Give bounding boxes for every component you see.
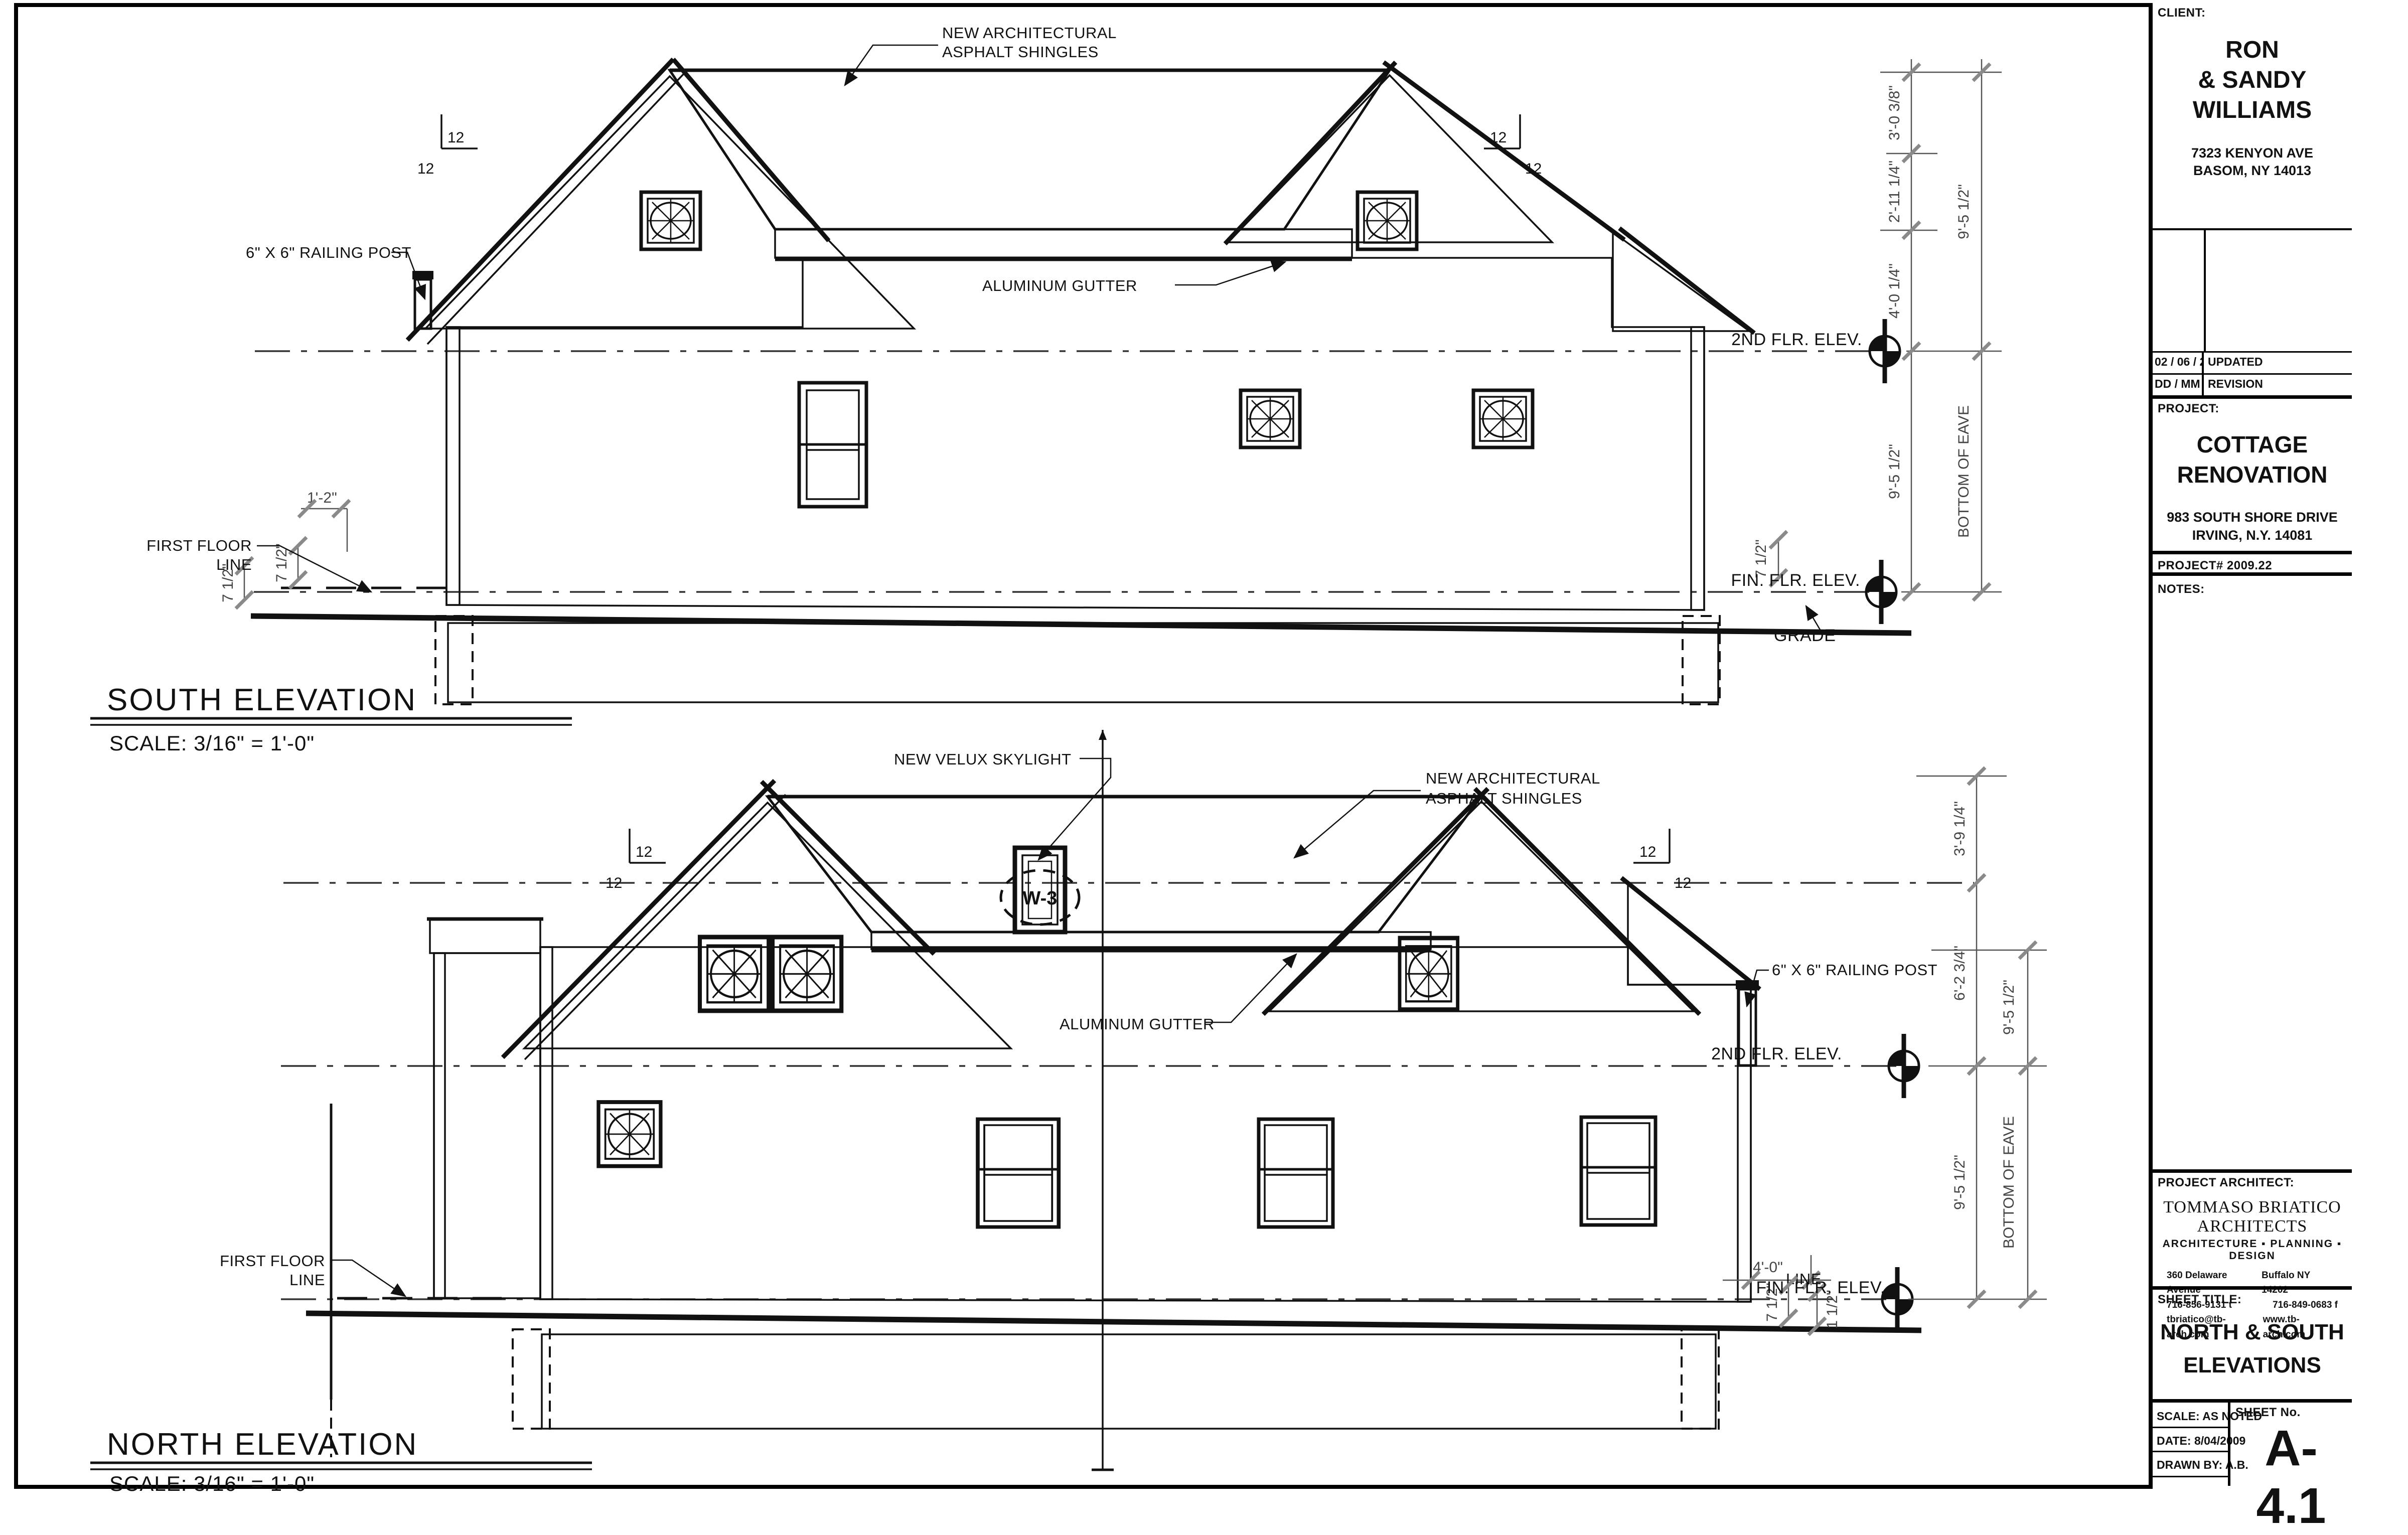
date-row: DATE: 8/04/2009 <box>2153 1427 2228 1451</box>
revision-date-header: DD / MM / YYYY <box>2153 375 2204 395</box>
south-left-gable-left-rake <box>407 59 673 340</box>
skylight-tag: W-3 <box>1023 888 1058 909</box>
north-left-gable-rake-inner <box>525 795 786 1059</box>
north-left-wing-roof <box>430 919 540 953</box>
revision-date: 02 / 06 / 2010 <box>2153 353 2204 373</box>
north-skylight: W-3 <box>1001 848 1079 932</box>
north-railing-note: 6" X 6" RAILING POST <box>1772 961 1937 979</box>
north-scale: SCALE: 3/16" = 1'-0" <box>109 1472 315 1495</box>
client-name-line1: RON <box>2153 35 2352 65</box>
north-first-floor-line-label2: LINE <box>289 1271 325 1289</box>
south-right-wing-eave <box>1619 228 1754 333</box>
north-shingles-leader <box>1294 791 1421 858</box>
south-foundation <box>448 623 1718 702</box>
south-right-corner-board <box>1691 327 1704 610</box>
north-first-floor-leader <box>330 1260 405 1296</box>
revision-header-row: DD / MM / YYYY REVISION <box>2153 373 2352 395</box>
revision-desc: UPDATED <box>2204 353 2352 373</box>
south-right-gable-left-rake <box>1225 62 1396 244</box>
south-scale: SCALE: 3/16" = 1'-0" <box>109 731 315 755</box>
south-fin-flr-elev-marker <box>1866 560 1896 624</box>
south-gutter-leader <box>1175 262 1285 285</box>
south-left-gable-window <box>641 192 700 249</box>
north-2nd-flr-elev-marker <box>1889 1034 1919 1098</box>
south-center-window <box>799 383 866 507</box>
dim-9-5-lower: 9'-5 1/2" <box>1886 444 1903 499</box>
north-gable-window-pair-2 <box>773 937 841 1011</box>
north-wall-siding <box>540 947 1751 1302</box>
slope-12: 12 <box>1525 161 1542 177</box>
south-fascia <box>775 229 1352 258</box>
north-gutter-note: ALUMINUM GUTTER <box>1060 1015 1215 1033</box>
dim-6-2-3-4: 6'-2 3/4" <box>1951 946 1968 1001</box>
south-left-gable-right-rake <box>673 59 829 241</box>
project-address-line1: 983 SOUTH SHORE DRIVE <box>2153 508 2352 526</box>
south-fin-flr-label: FIN. FLR. ELEV. <box>1731 571 1860 590</box>
north-left-wing-wall <box>434 953 540 1298</box>
dim-4-0-1-4: 4'-0 1/4" <box>1886 263 1903 319</box>
north-railing-post-cap <box>1736 980 1759 989</box>
slope-12: 12 <box>606 875 622 891</box>
north-fin-flr-label: FIN. FLR. ELEV. <box>1756 1278 1885 1297</box>
south-first-floor-line-label1: FIRST FLOOR <box>146 537 252 554</box>
north-slope-indicators: 12 12 12 12 <box>606 829 1691 891</box>
south-left-pier <box>435 616 473 704</box>
project-label: PROJECT: <box>2153 399 2352 416</box>
drawing-sheet: 3'-0 3/8" 2'-11 1/4" 4'-0 1/4" 9'-5 1/2"… <box>0 0 2408 1495</box>
north-first-floor-window-2 <box>1259 1119 1333 1227</box>
north-right-gable-right-rake <box>1475 789 1700 1014</box>
project-address-line2: IRVING, N.Y. 14081 <box>2153 526 2352 544</box>
architect-label: PROJECT ARCHITECT: <box>2153 1173 2352 1190</box>
slope-12: 12 <box>417 161 434 177</box>
revision-empty-row <box>2153 228 2352 351</box>
notes-box: NOTES: <box>2153 579 2352 1169</box>
north-first-floor-window-1 <box>978 1119 1059 1227</box>
north-2nd-flr-label: 2ND FLR. ELEV. <box>1711 1044 1842 1063</box>
client-address-line2: BASOM, NY 14013 <box>2153 162 2352 180</box>
south-mid-window-1 <box>1241 390 1300 447</box>
south-shingles-note-line2: ASPHALT SHINGLES <box>942 43 1099 61</box>
south-shingles-leader <box>845 45 938 85</box>
north-right-gable-face <box>1269 802 1694 1011</box>
south-slope-indicators: 12 12 12 12 <box>417 114 1542 177</box>
south-first-floor-line-label2: LINE <box>216 556 252 573</box>
north-left-gable-left-rake <box>503 781 775 1057</box>
south-title: SOUTH ELEVATION <box>107 683 417 717</box>
revision-row: 02 / 06 / 2010 UPDATED <box>2153 351 2352 373</box>
project-box: PROJECT: COTTAGE RENOVATION 983 SOUTH SH… <box>2153 395 2352 551</box>
north-right-gable-left-rake <box>1263 789 1488 1014</box>
slope-12: 12 <box>636 844 652 860</box>
south-grade-label: GRADE <box>1774 626 1836 645</box>
north-first-floor-line-label1: FIRST FLOOR <box>220 1252 325 1270</box>
client-box: CLIENT: RON & SANDY WILLIAMS 7323 KENYON… <box>2153 3 2352 228</box>
south-elevation: 3'-0 3/8" 2'-11 1/4" 4'-0 1/4" 9'-5 1/2"… <box>90 24 2002 755</box>
south-2nd-flr-label: 2ND FLR. ELEV. <box>1731 330 1862 349</box>
south-left-gable-rake-inner <box>427 73 684 344</box>
slope-12: 12 <box>1675 875 1691 891</box>
north-left-window <box>598 1102 661 1166</box>
dim-9-5-lower-n: 9'-5 1/2" <box>1951 1155 1968 1210</box>
project-number: PROJECT# 2009.22 <box>2153 554 2352 573</box>
north-right-wing-eave <box>1621 878 1760 989</box>
sheet-title-line1: NORTH & SOUTH <box>2153 1316 2352 1349</box>
north-dimension-string: 3'-9 1/4" 6'-2 3/4" 9'-5 1/2" 9'-5 1/2" … <box>1908 767 2047 1308</box>
drawn-by-row: DRAWN BY: A.B. <box>2153 1451 2228 1476</box>
south-2nd-flr-elev-marker <box>1870 319 1900 383</box>
north-left-pier <box>513 1329 550 1429</box>
north-foundation <box>542 1334 1716 1429</box>
north-shingles-note-line2: ASPHALT SHINGLES <box>1426 790 1582 807</box>
bottom-of-eave-label-n: BOTTOM OF EAVE <box>2001 1116 2017 1249</box>
slope-12: 12 <box>447 129 464 146</box>
scale-row: SCALE: AS NOTED <box>2153 1403 2228 1427</box>
south-grade-line <box>251 616 1911 633</box>
north-elevation: W-3 3'-9 1/4" 6'-2 3/4" 9'-5 1/2" 9'-5 1… <box>90 730 2047 1495</box>
slope-12: 12 <box>1639 844 1656 860</box>
north-left-gable-right-rake <box>762 782 934 954</box>
sheet-title-label: SHEET TITLE: <box>2153 1290 2352 1307</box>
dim-9-5-upper: 9'-5 1/2" <box>1955 184 1972 239</box>
notes-label: NOTES: <box>2153 579 2352 596</box>
north-right-pier <box>1682 1329 1719 1429</box>
north-skylight-note: NEW VELUX SKYLIGHT <box>894 750 1072 768</box>
south-right-gable-window <box>1358 192 1417 249</box>
north-gable-window-pair-1 <box>700 937 769 1011</box>
centerline-cap <box>1099 730 1107 740</box>
dim-3-9-1-4: 3'-9 1/4" <box>1951 801 1968 856</box>
north-left-corner-board <box>540 947 552 1299</box>
elevation-drawings: 3'-0 3/8" 2'-11 1/4" 4'-0 1/4" 9'-5 1/2"… <box>0 0 2152 1495</box>
south-gutter-note: ALUMINUM GUTTER <box>982 277 1137 294</box>
north-title: NORTH ELEVATION <box>107 1427 418 1462</box>
sheet-no-label: SHEET No. <box>2230 1403 2352 1420</box>
south-main-roof-shingles <box>670 70 1390 229</box>
client-name-line2: & SANDY <box>2153 65 2352 95</box>
north-shingles-note-line1: NEW ARCHITECTURAL <box>1426 770 1600 787</box>
revision-header: REVISION <box>2204 375 2352 395</box>
client-address-line1: 7323 KENYON AVE <box>2153 144 2352 162</box>
sheet-title-box: SHEET TITLE: NORTH & SOUTH ELEVATIONS <box>2153 1286 2352 1399</box>
architect-tagline: ARCHITECTURE ▪ PLANNING ▪ DESIGN <box>2153 1238 2352 1262</box>
north-grade-line <box>306 1313 1921 1330</box>
project-name-line2: RENOVATION <box>2153 460 2352 490</box>
south-right-gable-right-rake <box>1384 62 1624 240</box>
south-left-corner-board <box>446 327 460 605</box>
dim-9-5-upper-n: 9'-5 1/2" <box>2001 980 2017 1035</box>
sheet-number: A-4.1 <box>2230 1420 2352 1535</box>
architect-name: TOMMASO BRIATICO ARCHITECTS <box>2153 1198 2352 1236</box>
client-label: CLIENT: <box>2153 3 2352 20</box>
architect-box: PROJECT ARCHITECT: TOMMASO BRIATICO ARCH… <box>2153 1169 2352 1286</box>
south-shingles-note-line1: NEW ARCHITECTURAL <box>942 24 1117 42</box>
south-railing-note: 6" X 6" RAILING POST <box>246 244 411 261</box>
slope-12: 12 <box>1490 129 1507 146</box>
dim-3-0-3-8: 3'-0 3/8" <box>1886 85 1903 140</box>
bottom-of-eave-label: BOTTOM OF EAVE <box>1955 405 1972 538</box>
north-first-floor-window-3 <box>1581 1117 1656 1225</box>
dim-2-11-1-4: 2'-11 1/4" <box>1886 161 1903 223</box>
north-fin-flr-elev-marker <box>1882 1267 1912 1331</box>
title-block-footer: SCALE: AS NOTED DATE: 8/04/2009 DRAWN BY… <box>2153 1399 2352 1486</box>
title-block: CLIENT: RON & SANDY WILLIAMS 7323 KENYON… <box>2149 3 2352 1489</box>
south-right-wing-roof <box>1613 232 1749 331</box>
south-mid-window-2 <box>1473 390 1533 447</box>
north-left-wing-corner <box>434 953 445 1298</box>
sheet-title-line2: ELEVATIONS <box>2153 1349 2352 1382</box>
project-name-line1: COTTAGE <box>2153 430 2352 460</box>
north-skylight-leader <box>1038 758 1111 860</box>
client-name-line3: WILLIAMS <box>2153 95 2352 125</box>
